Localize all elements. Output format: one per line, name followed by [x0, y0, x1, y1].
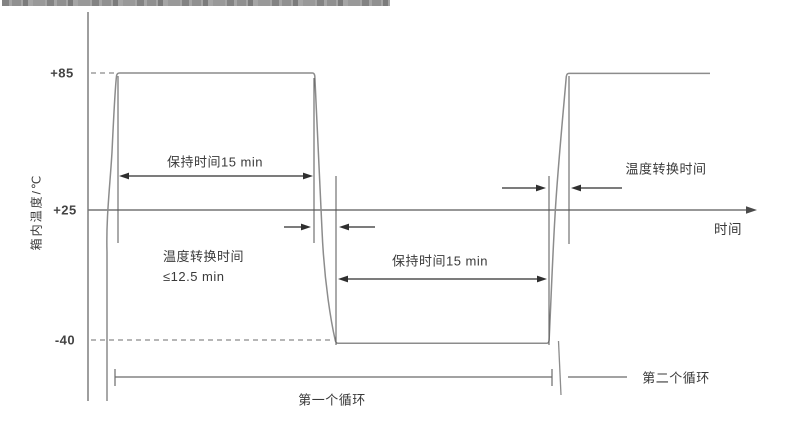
transition-time-left-line2: ≤12.5 min [163, 267, 244, 287]
hold-time-bottom-label: 保持时间15 min [392, 251, 488, 270]
transition1-right-arrow-head [339, 224, 349, 231]
temperature-curve [107, 73, 710, 401]
tick-ambient-25: +25 [53, 203, 77, 218]
hold-arrow-bottom-right-head [537, 276, 547, 283]
transition-time-left-label: 温度转换时间 ≤12.5 min [163, 247, 244, 286]
cycle-divider-line [559, 341, 562, 395]
hold-arrow-top-left-head [119, 173, 129, 180]
transition-time-left-line1: 温度转换时间 [163, 247, 244, 267]
cycle-second-label: 第二个循环 [642, 368, 710, 387]
cycle-first-label: 第一个循环 [298, 390, 366, 409]
tick-high-85: +85 [50, 66, 74, 81]
hold-time-top-label: 保持时间15 min [167, 152, 263, 171]
hold-arrow-bottom-left-head [338, 276, 348, 283]
transition2-right-arrow-head [571, 185, 581, 192]
transition-time-right-label: 温度转换时间 [625, 159, 706, 178]
transition1-left-arrow-head [301, 224, 311, 231]
transition2-left-arrow-head [536, 185, 546, 192]
x-axis-arrowhead [746, 206, 757, 213]
y-axis-label: 箱内温度/℃ [28, 174, 45, 251]
thermal-cycle-diagram: 箱内温度/℃ +85 +25 -40 保持时间15 min 温度转换时间 ≤12… [0, 0, 804, 442]
x-axis-label: 时间 [714, 218, 742, 238]
hold-arrow-top-right-head [303, 173, 313, 180]
tick-low-40: -40 [55, 333, 75, 348]
